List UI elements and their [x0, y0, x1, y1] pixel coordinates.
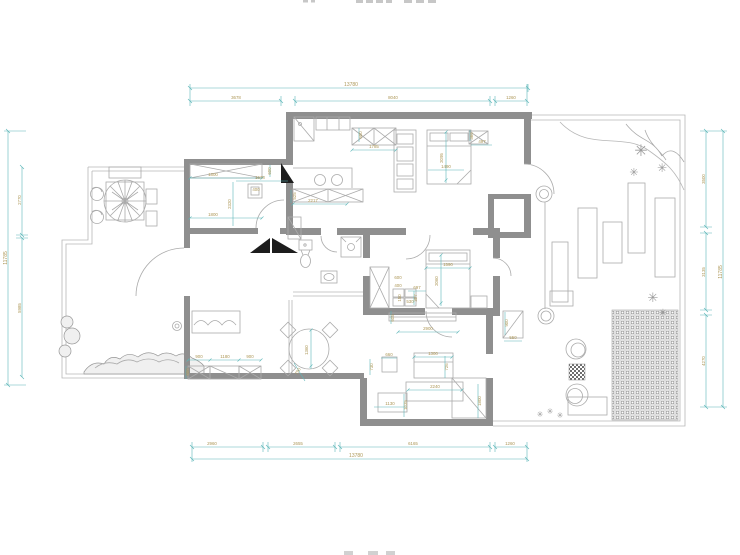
dim-label: 13780	[349, 453, 363, 459]
dim-label: 1800	[208, 212, 218, 217]
dim-label: 400	[252, 187, 260, 192]
cropped-footer-fragment	[344, 551, 395, 555]
dim-label: 1180	[220, 354, 230, 359]
dim-label: 1130	[385, 401, 395, 406]
door-arc	[136, 248, 184, 296]
plant-icon: ✳	[537, 410, 544, 419]
dim-label: 1360	[304, 345, 309, 355]
dim-label: 2060	[434, 276, 439, 286]
plant-icon: ✳	[547, 407, 554, 416]
dim-label: 497	[478, 139, 486, 144]
dim-label: 307	[413, 294, 418, 302]
dim-label: 1260	[505, 441, 515, 446]
door-triangle	[250, 238, 270, 253]
column	[173, 322, 182, 331]
bedroom-mid-furniture	[370, 250, 487, 308]
dim-label: 900	[195, 354, 203, 359]
toilet-bowl	[301, 255, 311, 268]
dim-label: 4270	[701, 356, 706, 366]
chair	[322, 322, 338, 338]
bathroom-fixtures	[299, 237, 361, 283]
dim-label: 150	[397, 294, 402, 302]
dim-label: 2655	[293, 441, 303, 446]
dim-label: 1590	[443, 262, 453, 267]
dining-table	[289, 329, 329, 369]
floor-plan-drawing: ✳ ✳ ✳ ✳ ✳ ✳ ✳ ✳	[0, 0, 740, 555]
dim-label: 1678	[255, 175, 265, 180]
dim-label: 900	[246, 354, 254, 359]
terrace	[59, 167, 204, 378]
dim-label: 1035	[403, 400, 408, 410]
dim-label: 600	[394, 275, 402, 280]
plant-icon: ✳	[557, 411, 564, 420]
dim-label: 530	[406, 299, 414, 304]
washbasin	[321, 271, 337, 283]
door-triangle	[281, 163, 294, 183]
dim-label: 1300	[428, 351, 438, 356]
dim-label: 525	[292, 192, 297, 200]
dim-label: 1785	[369, 144, 379, 149]
dim-label: 730	[369, 363, 374, 371]
dim-label: 2960	[207, 441, 217, 446]
door-arc	[524, 164, 554, 194]
dim-label: 600	[358, 131, 363, 139]
dim-label: 6165	[408, 441, 418, 446]
dim-label: 11785	[3, 251, 9, 265]
dim-label: 2240	[430, 384, 440, 389]
dim-label: 726	[444, 363, 449, 371]
dim-label: 660	[385, 352, 393, 357]
planter	[550, 291, 573, 306]
plant-icon: ✳	[648, 291, 659, 306]
dim-label: 2320	[227, 199, 232, 209]
plant-icon: ✳	[629, 166, 638, 179]
dim-label: 2217	[308, 198, 318, 203]
dim-label: 400	[394, 283, 402, 288]
stepping-stones	[552, 183, 675, 302]
door-arc	[321, 236, 337, 252]
dim-label: 13780	[344, 82, 358, 88]
dim-label: 3135	[701, 267, 706, 277]
dim-label: 3500	[701, 174, 706, 184]
plant-icon: ✳	[659, 308, 667, 319]
floor-plan-canvas: ✳ ✳ ✳ ✳ ✳ ✳ ✳ ✳	[0, 0, 740, 555]
kitchen-furniture	[293, 117, 363, 202]
door-arc	[426, 311, 452, 337]
dim-label: 2900	[423, 326, 433, 331]
planter	[568, 397, 607, 415]
cropped-header-fragment	[303, 0, 436, 3]
dim-label: 697	[413, 285, 421, 290]
door-arc	[256, 200, 284, 228]
dim-label: 2095	[439, 153, 444, 163]
door-triangle	[272, 238, 298, 253]
garden: ✳ ✳ ✳ ✳ ✳ ✳ ✳ ✳	[493, 115, 685, 426]
dim-label: 3678	[231, 95, 241, 100]
dim-label: 605	[390, 314, 395, 322]
dim-label: 900	[504, 319, 509, 327]
door-arc	[493, 258, 511, 276]
garden-stones	[536, 186, 588, 406]
dim-label: 1490	[441, 164, 451, 169]
dim-label: 600	[185, 368, 190, 376]
dim-label: 550	[509, 335, 517, 340]
dim-label: 1800	[208, 172, 218, 177]
dim-label: 1800	[477, 396, 482, 406]
dim-label: 366	[469, 132, 474, 140]
chair	[280, 322, 296, 338]
partition-lines	[289, 292, 363, 373]
terrace-rocks	[59, 316, 204, 374]
bedroom-top-furniture	[352, 128, 488, 192]
dim-label: 5985	[17, 303, 22, 313]
bed	[427, 130, 471, 184]
plant-icon: ✳	[634, 141, 647, 160]
dim-label: 1260	[506, 95, 516, 100]
stone-tile	[569, 364, 585, 380]
lattice-paving	[612, 310, 678, 420]
toilet-tank	[299, 240, 312, 250]
planting-bed-edge	[560, 122, 684, 190]
patio-table	[104, 180, 146, 222]
dim-label: 11785	[718, 265, 724, 279]
dim-label: 8040	[388, 95, 398, 100]
dim-label: 2770	[17, 195, 22, 205]
bed	[426, 250, 470, 308]
dim-label: 600	[267, 167, 272, 175]
plant-icon: ✳	[657, 161, 667, 175]
